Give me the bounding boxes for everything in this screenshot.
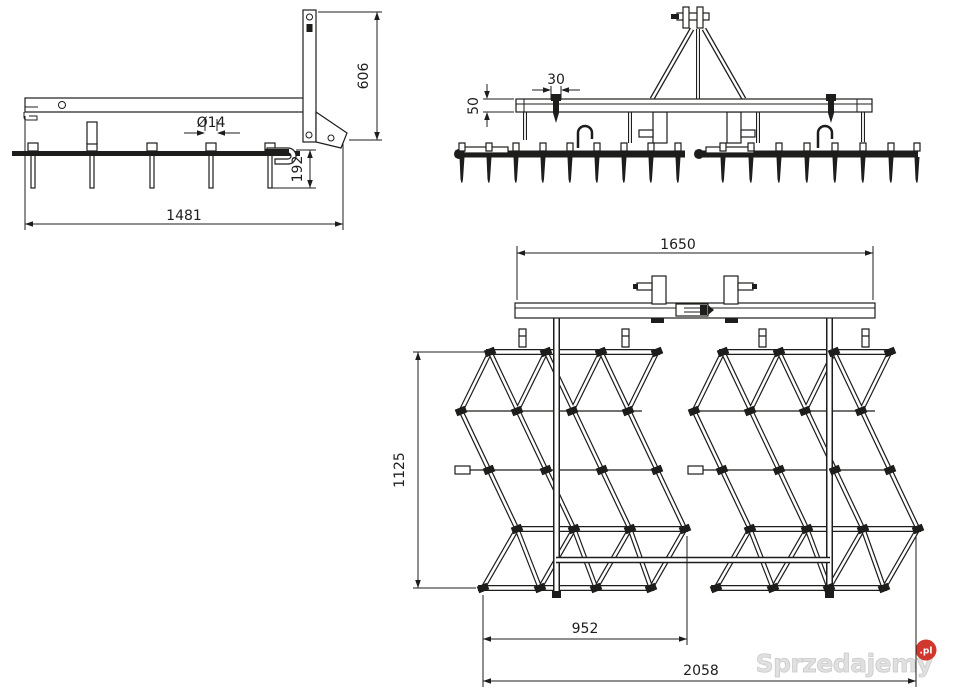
watermark: Sprzedajemy .pl xyxy=(756,640,937,679)
side-beam xyxy=(25,98,315,112)
dim-label-2058: 2058 xyxy=(683,663,719,679)
dim-label-1481: 1481 xyxy=(166,208,202,224)
side-tine-shank xyxy=(87,122,97,144)
plan-centre-clamp xyxy=(676,304,714,316)
plan-tine-stubs xyxy=(519,329,869,347)
side-view: 1481 606 192 Ø14 xyxy=(12,10,382,230)
dim-label-diameter: Ø14 xyxy=(197,115,226,131)
drop-brackets xyxy=(639,112,755,143)
front-tines xyxy=(460,157,920,183)
dim-label-952: 952 xyxy=(572,621,599,637)
watermark-badge-label: .pl xyxy=(920,647,933,657)
dim-label-1125: 1125 xyxy=(392,452,408,488)
dim-label-606: 606 xyxy=(356,63,372,90)
side-tine-clamps xyxy=(28,143,275,151)
front-tine-clamps xyxy=(459,143,920,151)
front-hook-left xyxy=(578,126,592,148)
dim-label-50: 50 xyxy=(466,97,482,115)
technical-drawing: 1481 606 192 Ø14 xyxy=(0,0,960,694)
front-hook-right xyxy=(818,126,832,148)
toplink-bracket xyxy=(671,7,709,28)
front-view: 30 50 xyxy=(454,7,920,183)
plan-view: 1650 1125 952 xyxy=(392,237,923,687)
dim-label-192: 192 xyxy=(290,156,306,183)
dim-label-30: 30 xyxy=(547,72,565,88)
front-beam xyxy=(516,99,872,112)
side-left-bracket xyxy=(24,112,37,120)
dim-label-1650: 1650 xyxy=(660,237,696,253)
watermark-brand: Sprzedajemy xyxy=(756,649,933,678)
side-tine-bar xyxy=(12,151,300,156)
drop-rods xyxy=(525,112,863,143)
side-brace-plate xyxy=(316,112,347,148)
